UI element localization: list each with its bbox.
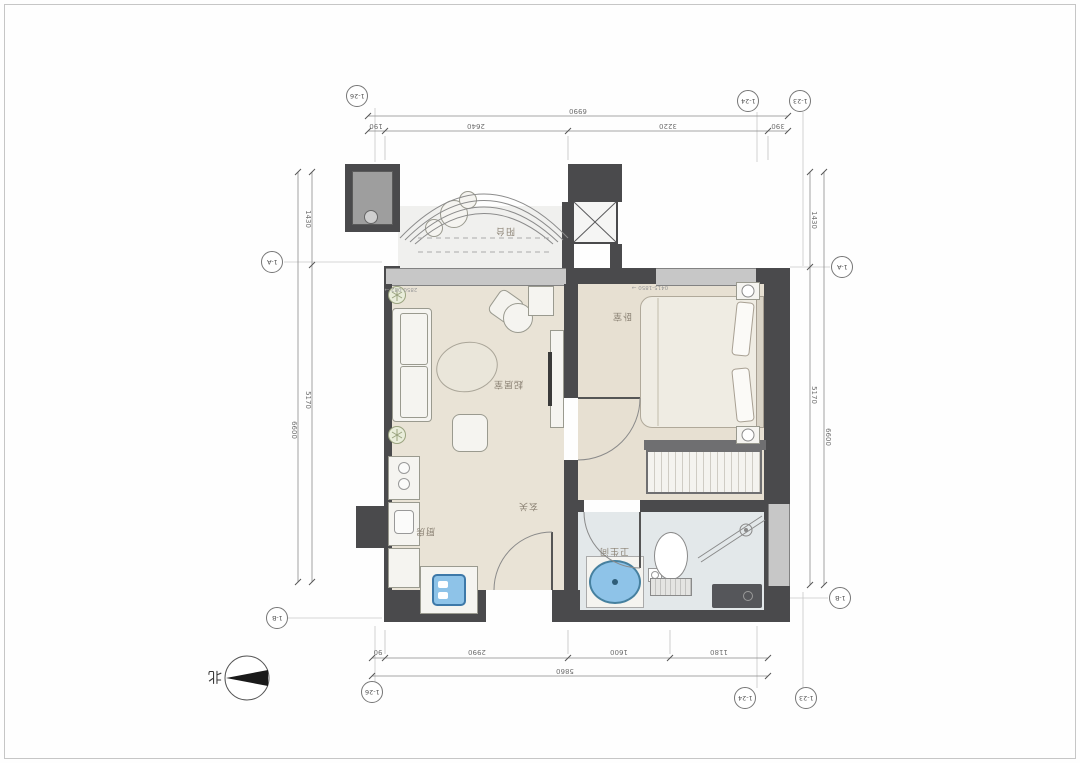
dim-left-seg-1: 1430 bbox=[304, 210, 312, 228]
balcony-drying-lines bbox=[418, 238, 550, 252]
bedroom-door bbox=[578, 398, 640, 460]
grid-bubble-bottom-1: 1-26 bbox=[361, 681, 383, 703]
dim-top-seg-3: 3220 bbox=[659, 122, 677, 130]
shaft-cross-icon bbox=[574, 202, 616, 242]
dim-bottom-total: 5860 bbox=[556, 667, 574, 675]
dim-right-total: 6600 bbox=[824, 428, 832, 446]
floor-plan-sheet: 1-26 1-24 1-23 1-26 1-24 1-23 1-A 1-B 1-… bbox=[0, 0, 1080, 763]
room-label-living: 起居室 bbox=[493, 379, 523, 392]
grid-bubble-top-3: 1-23 bbox=[789, 90, 811, 112]
dim-top-total: 6990 bbox=[569, 107, 587, 115]
dim-bottom-seg-4: 1180 bbox=[710, 648, 728, 656]
room-label-bedroom: 卧室 bbox=[612, 311, 632, 324]
window-tag-right: 0415-1850 → bbox=[632, 284, 668, 290]
dim-left-total: 6600 bbox=[290, 421, 298, 439]
grid-bubble-top-2: 1-24 bbox=[737, 90, 759, 112]
dim-right-seg-2: 5170 bbox=[810, 386, 818, 404]
grid-bubble-top-1: 1-26 bbox=[346, 85, 368, 107]
shower-glass-panel bbox=[698, 516, 765, 562]
dim-top-seg-1: 190 bbox=[369, 122, 382, 130]
linework-overlay bbox=[0, 0, 1080, 763]
grid-axis-lines bbox=[284, 108, 830, 688]
grid-bubble-right-b: 1-B bbox=[829, 587, 851, 609]
room-label-kitchen: 厨房 bbox=[415, 526, 435, 539]
dim-bottom-seg-2: 2990 bbox=[468, 648, 486, 656]
dim-right-seg-1: 1430 bbox=[810, 211, 818, 229]
bathroom-door bbox=[584, 512, 640, 568]
grid-bubble-left-b: 1-B bbox=[266, 607, 288, 629]
balcony-bow-window-arcs bbox=[400, 194, 568, 244]
dimension-ticks bbox=[295, 113, 827, 679]
plant-leaves bbox=[392, 289, 402, 441]
dim-bottom-seg-3: 1600 bbox=[610, 648, 628, 656]
grid-bubble-bottom-2: 1-24 bbox=[734, 687, 756, 709]
room-label-balcony: 阳台 bbox=[495, 226, 515, 239]
room-label-entry: 玄关 bbox=[518, 501, 538, 514]
entry-door bbox=[494, 532, 552, 590]
dimension-lines bbox=[298, 116, 824, 676]
dim-bottom-seg-1: 90 bbox=[374, 648, 383, 656]
north-label: 北 bbox=[208, 667, 222, 687]
room-label-bathroom: 卫生间 bbox=[599, 546, 629, 559]
grid-bubble-right-a: 1-A bbox=[831, 256, 853, 278]
dim-left-seg-2: 5170 bbox=[304, 391, 312, 409]
grid-bubble-bottom-3: 1-23 bbox=[795, 687, 817, 709]
window-tag-left: 2850-082 → bbox=[385, 286, 418, 292]
nightstand-lamps bbox=[742, 285, 754, 441]
dim-top-seg-2: 2640 bbox=[467, 122, 485, 130]
dim-top-seg-4: 390 bbox=[771, 122, 784, 130]
grid-bubble-left-a: 1-A bbox=[261, 251, 283, 273]
north-compass bbox=[225, 656, 269, 700]
